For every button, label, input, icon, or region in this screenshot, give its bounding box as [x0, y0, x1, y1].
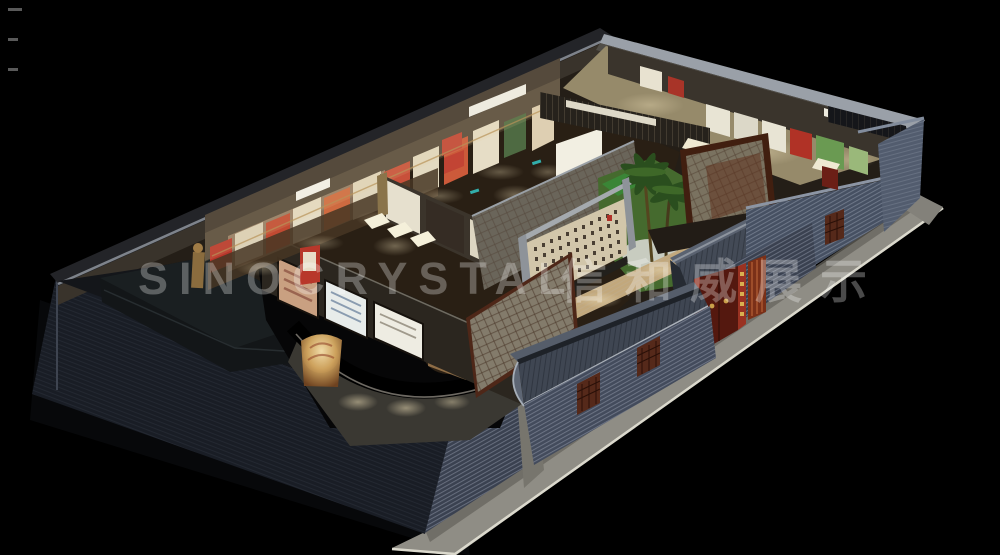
svg-text:信和威展示: 信和威展示 — [560, 255, 885, 308]
svg-text:SINOCRYSTAL: SINOCRYSTAL — [138, 253, 577, 304]
